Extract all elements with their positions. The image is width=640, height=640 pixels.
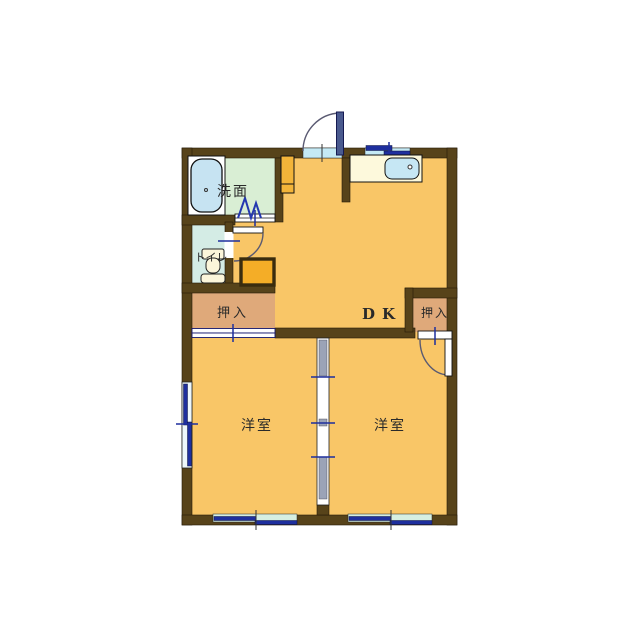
bottom-left-window-sash	[214, 517, 256, 521]
shoe-cabinet	[281, 156, 294, 193]
closet-right-door-panel	[445, 339, 452, 376]
bottom-right-window-sash	[390, 521, 432, 525]
toilet-base	[201, 274, 225, 283]
label-closet-right: 押入	[421, 306, 449, 320]
wall-dk-south	[275, 328, 415, 338]
left-window-sash	[184, 384, 188, 425]
bottom-right-window-sash	[349, 517, 391, 521]
floorplan-svg: 洗面 トイレ 押入 DK 押入 洋室 洋室	[0, 0, 640, 640]
utility-box	[241, 259, 274, 285]
wall-partition-stub-bottom	[317, 505, 329, 515]
label-toilet: トイレ	[195, 251, 228, 264]
partition-panel	[319, 457, 327, 499]
faucet-dot	[408, 165, 412, 169]
floorplan-image: 洗面 トイレ 押入 DK 押入 洋室 洋室	[0, 0, 640, 640]
partition-panel	[319, 340, 327, 376]
entrance-door-panel	[337, 112, 344, 155]
label-dk: DK	[362, 305, 402, 323]
label-closet-left: 押入	[217, 306, 249, 321]
wall-entry-stub	[342, 158, 350, 202]
label-bedroom-left: 洋室	[241, 417, 273, 434]
left-window-sash	[188, 422, 192, 466]
bottom-left-window-sash	[255, 521, 297, 525]
kitchen-window-sash	[366, 146, 392, 151]
kitchen-sink	[385, 158, 419, 179]
label-washroom: 洗面	[217, 184, 249, 200]
toilet-door-panel	[233, 227, 263, 233]
wall-closet-right-west	[405, 288, 413, 332]
label-bedroom-right: 洋室	[374, 417, 406, 434]
